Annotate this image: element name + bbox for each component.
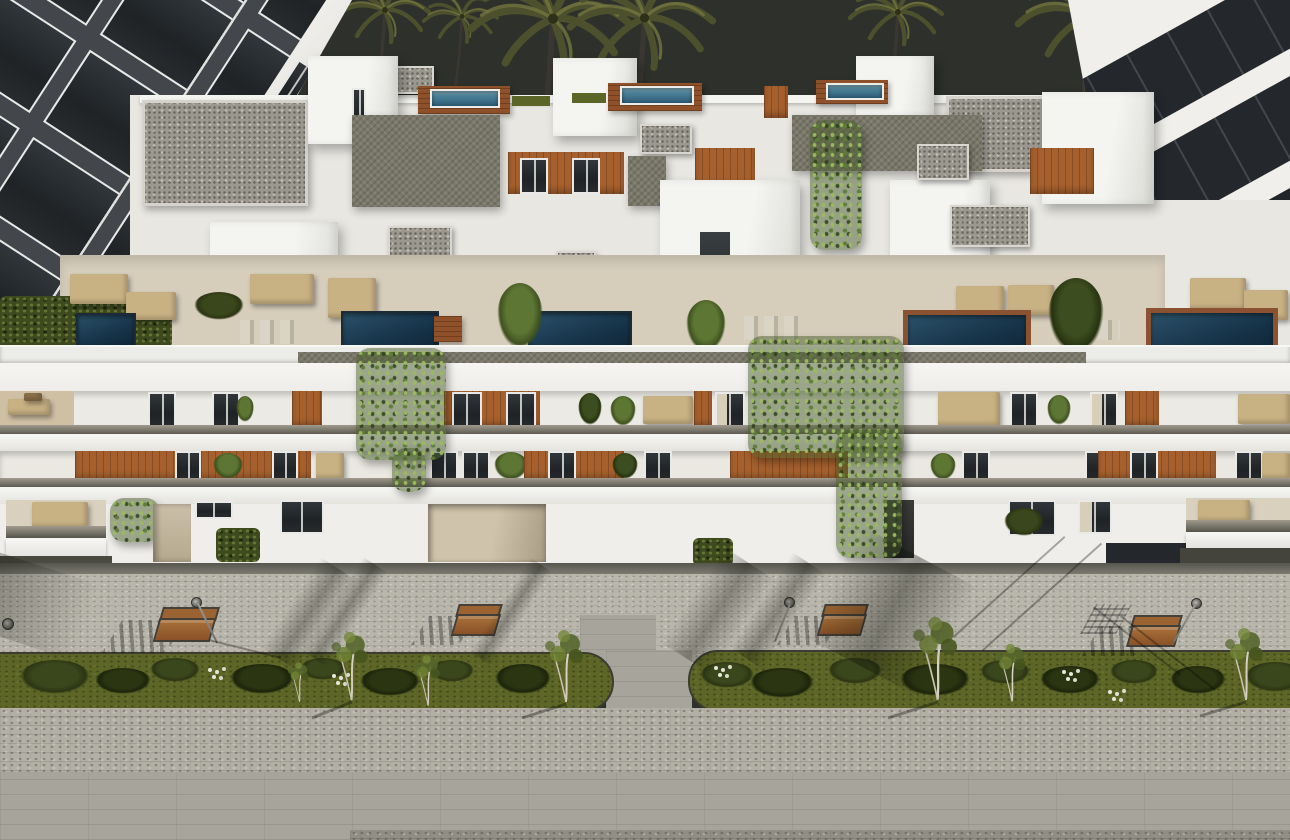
architectural-render-scene xyxy=(0,0,1290,840)
island-trees xyxy=(0,0,1290,840)
